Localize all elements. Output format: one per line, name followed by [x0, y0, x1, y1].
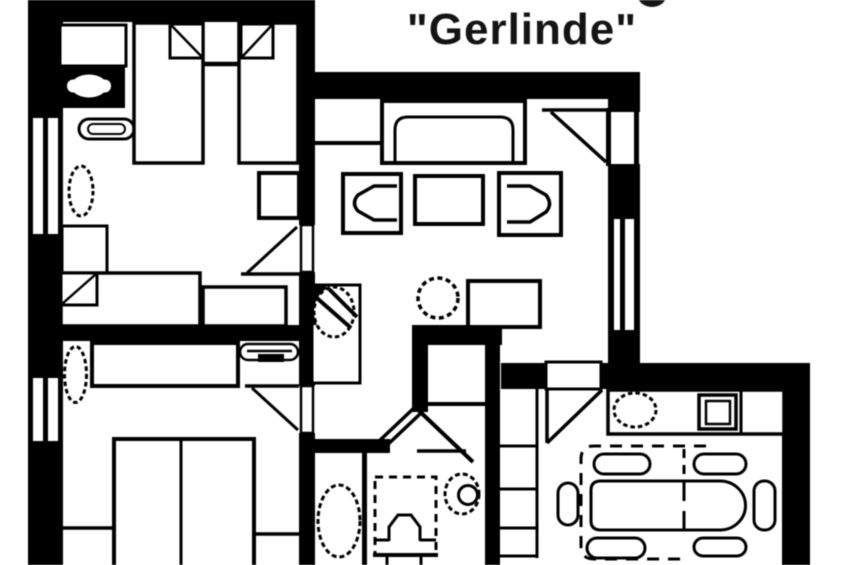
svg-text:"Gerlinde": "Gerlinde"	[407, 5, 637, 54]
